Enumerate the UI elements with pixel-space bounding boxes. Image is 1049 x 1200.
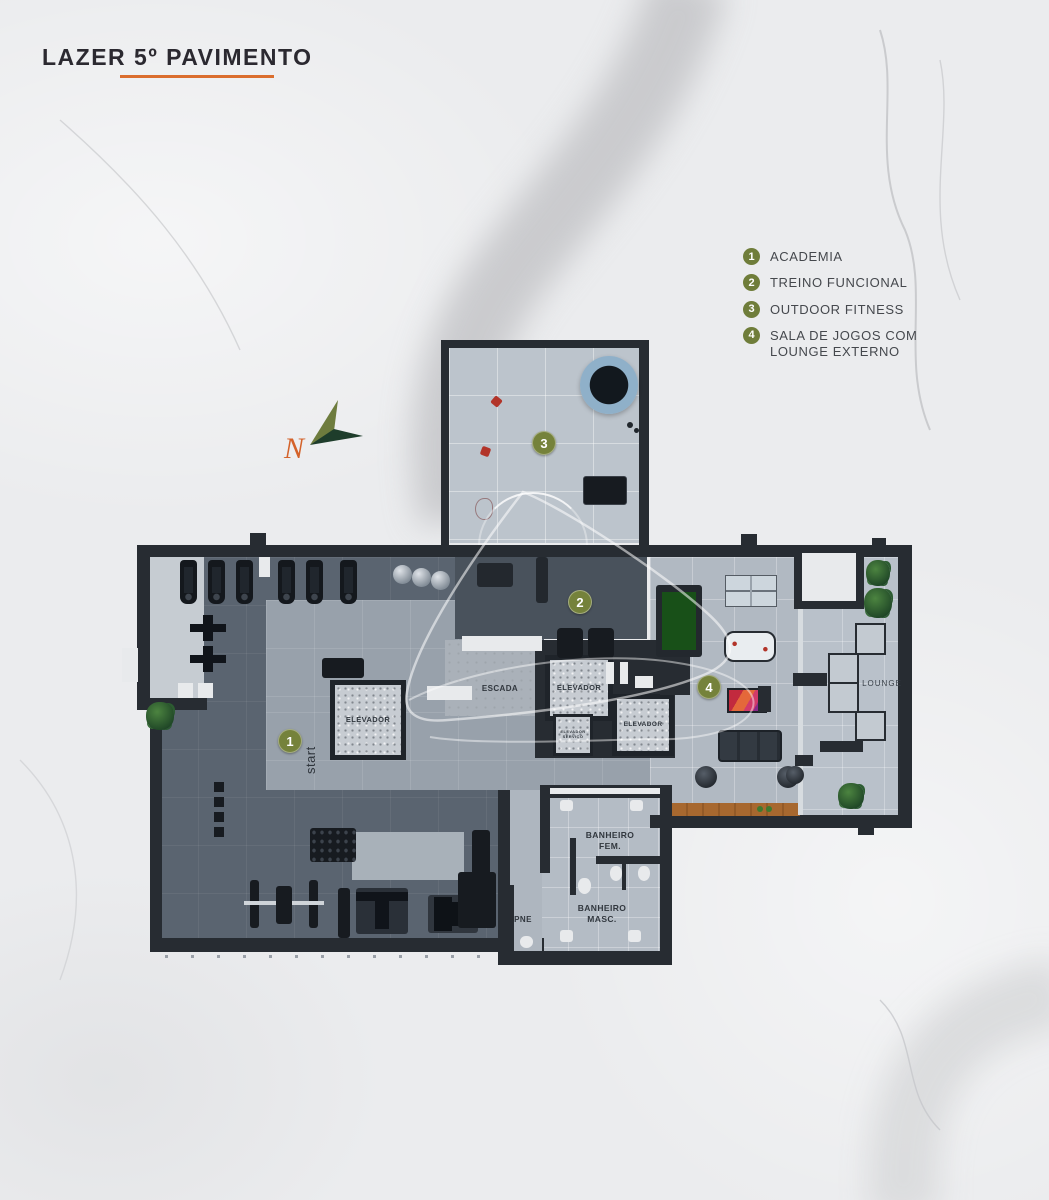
watermark-logo [0,0,1049,1200]
watermark-triangle [406,492,730,721]
watermark-loop [409,658,754,741]
floorplan-page: LAZER 5º PAVIMENTO 1 ACADEMIA 2 TREINO F… [0,0,1049,1200]
